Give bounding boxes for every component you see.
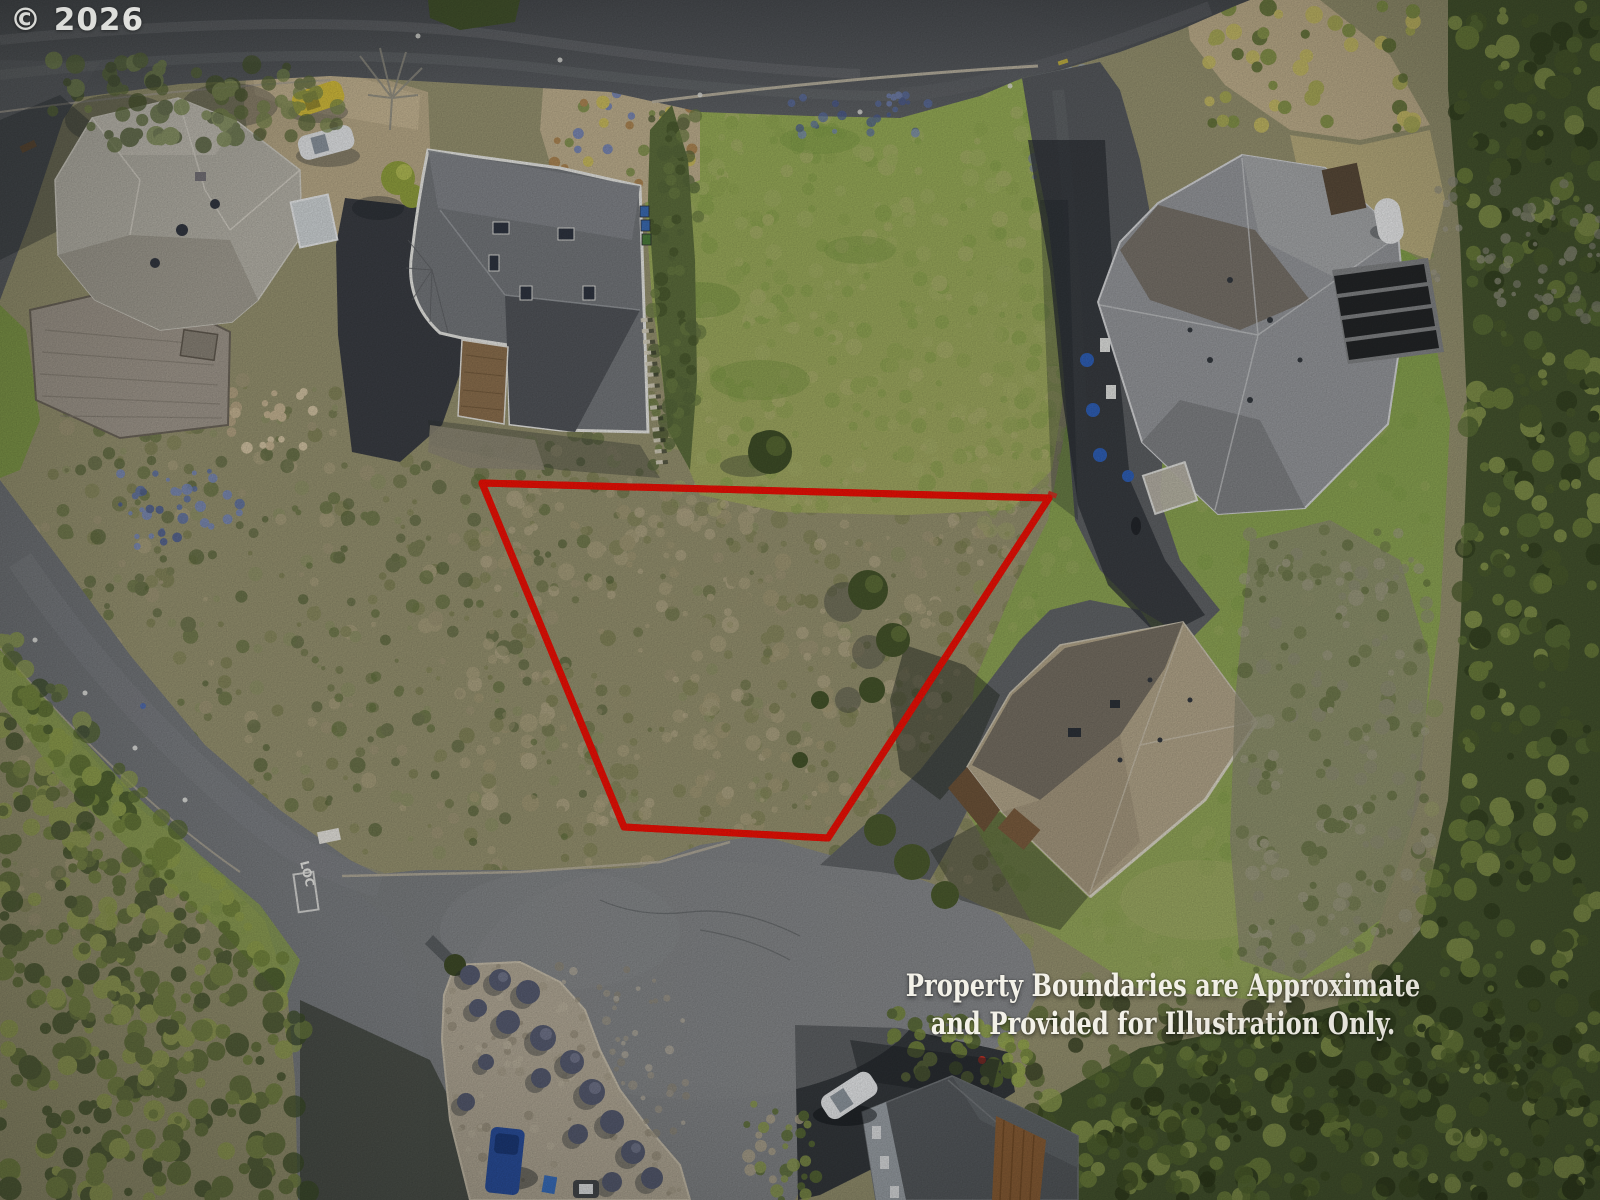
copyright-watermark: © 2026 (10, 2, 144, 38)
boundary-disclaimer: Property Boundaries are Approximate and … (906, 967, 1420, 1043)
disclaimer-line1: Property Boundaries are Approximate (906, 967, 1420, 1005)
disclaimer-line2: and Provided for Illustration Only. (906, 1005, 1420, 1043)
screenshot-root: LOC © 2026 Property Boundaries are Appro… (0, 0, 1600, 1200)
